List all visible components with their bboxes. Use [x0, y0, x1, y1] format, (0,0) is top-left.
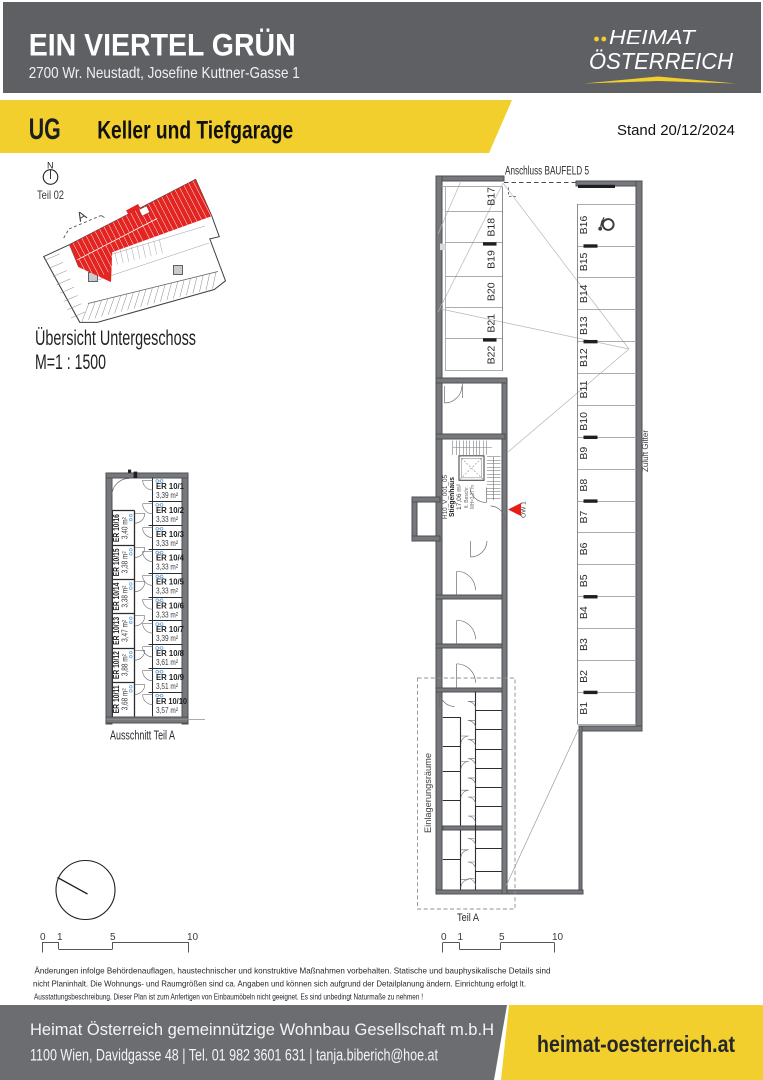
svg-text:ER 10/9: ER 10/9 [156, 672, 184, 682]
svg-text:3,88 m²: 3,88 m² [121, 654, 130, 676]
svg-text:ER 10/13: ER 10/13 [111, 617, 121, 645]
svg-text:B1: B1 [578, 702, 590, 715]
svg-text:B8: B8 [578, 479, 590, 492]
svg-text:ER 10/12: ER 10/12 [111, 651, 121, 679]
svg-text:ER 10/8: ER 10/8 [156, 648, 184, 658]
svg-text:5: 5 [499, 932, 505, 943]
svg-text:Stand 20/12/2024: Stand 20/12/2024 [617, 122, 735, 139]
svg-text:heimat-oesterreich.at: heimat-oesterreich.at [537, 1031, 735, 1057]
svg-text:ER 10/10: ER 10/10 [156, 696, 187, 706]
svg-text:N: N [47, 161, 54, 171]
svg-text:Anschluss BAUFELD 5: Anschluss BAUFELD 5 [505, 166, 589, 178]
svg-text:3,39 m²: 3,39 m² [156, 491, 178, 500]
svg-text:ER 10/11: ER 10/11 [111, 685, 121, 713]
svg-text:3,61 m²: 3,61 m² [156, 658, 178, 667]
svg-text:1: 1 [458, 932, 464, 943]
svg-text:B20: B20 [486, 282, 498, 301]
svg-text:3,33 m²: 3,33 m² [156, 610, 178, 619]
svg-text:3,51 m²: 3,51 m² [156, 682, 178, 691]
svg-text:3,68 m²: 3,68 m² [121, 688, 130, 710]
svg-text:10: 10 [552, 932, 564, 943]
svg-text:Stiegenhaus: Stiegenhaus [449, 477, 456, 517]
svg-text:B19: B19 [486, 250, 498, 269]
svg-text:Änderungen infolge Behördenauf: Änderungen infolge Behördenauflagen, hau… [35, 966, 551, 976]
svg-text:Ausschnitt Teil A: Ausschnitt Teil A [110, 728, 175, 743]
svg-text:5: 5 [110, 932, 116, 943]
svg-text:2700 Wr. Neustadt, Josefine Ku: 2700 Wr. Neustadt, Josefine Kuttner-Gass… [29, 65, 300, 82]
svg-text:3,33 m²: 3,33 m² [156, 587, 178, 596]
svg-text:3,33 m²: 3,33 m² [156, 515, 178, 524]
svg-text:B16: B16 [578, 216, 590, 235]
svg-text:B17: B17 [486, 187, 498, 206]
svg-text:ER 10/4: ER 10/4 [156, 553, 184, 563]
svg-text:B22: B22 [486, 346, 498, 365]
svg-text:3,57 m²: 3,57 m² [156, 706, 178, 715]
svg-text:3,39 m²: 3,39 m² [156, 634, 178, 643]
svg-text:1: 1 [57, 932, 63, 943]
svg-text:UG: UG [29, 113, 61, 146]
svg-text:ER 10/5: ER 10/5 [156, 577, 184, 587]
svg-text:1100 Wien, Davidgasse 48 | Tel: 1100 Wien, Davidgasse 48 | Tel. 01 982 3… [30, 1046, 438, 1065]
svg-text:nicht Planinhalt. Die Wohnungs: nicht Planinhalt. Die Wohnungs- und Raum… [33, 979, 526, 989]
svg-text:OW 1: OW 1 [521, 501, 528, 518]
svg-text:B7: B7 [578, 510, 590, 523]
svg-text:3,33 m²: 3,33 m² [156, 563, 178, 572]
svg-text:ER 10/1: ER 10/1 [156, 481, 184, 491]
svg-text:3,38 m²: 3,38 m² [121, 551, 130, 573]
svg-text:B13: B13 [578, 316, 590, 335]
svg-text:3,40 m²: 3,40 m² [121, 517, 130, 539]
svg-text:B5: B5 [578, 574, 590, 587]
svg-text:0: 0 [40, 932, 46, 943]
svg-text:3,38 m²: 3,38 m² [121, 585, 130, 607]
svg-text:B18: B18 [486, 218, 498, 237]
svg-text:A: A [74, 207, 89, 224]
svg-text:3,33 m²: 3,33 m² [156, 539, 178, 548]
svg-text:ER 10/16: ER 10/16 [111, 514, 121, 542]
svg-text:ER 10/6: ER 10/6 [156, 600, 184, 610]
svg-text:B4: B4 [578, 606, 590, 619]
svg-text:0: 0 [441, 932, 447, 943]
svg-text:M=1 : 1500: M=1 : 1500 [35, 351, 106, 374]
svg-text:B2: B2 [578, 670, 590, 683]
svg-text:ER 10/14: ER 10/14 [111, 582, 121, 610]
svg-text:Teil 02: Teil 02 [37, 188, 64, 202]
svg-text:B21: B21 [486, 314, 498, 333]
svg-text:MH=3,37 m: MH=3,37 m [470, 485, 476, 509]
svg-text:ER 10/7: ER 10/7 [156, 624, 184, 634]
svg-text:17,06 m²: 17,06 m² [457, 484, 463, 510]
svg-text:B3: B3 [578, 638, 590, 651]
svg-text:Heimat Österreich gemeinnützig: Heimat Österreich gemeinnützige Wohnbau … [30, 1020, 494, 1039]
svg-text:Übersicht Untergeschoss: Übersicht Untergeschoss [35, 327, 196, 350]
svg-text:B10: B10 [578, 412, 590, 431]
svg-text:HEIMAT: HEIMAT [609, 26, 697, 49]
svg-text:B14: B14 [578, 284, 590, 303]
svg-text:B15: B15 [578, 252, 590, 271]
svg-text:Teil A: Teil A [457, 912, 480, 924]
svg-text:ER 10/3: ER 10/3 [156, 529, 184, 539]
svg-text:Ausstattungsbeschreibung. Dies: Ausstattungsbeschreibung. Dieser Plan is… [34, 992, 423, 1002]
svg-text:Zuluft Gitter: Zuluft Gitter [641, 430, 650, 472]
svg-text:ER 10/2: ER 10/2 [156, 505, 184, 515]
svg-text:10: 10 [187, 932, 199, 943]
svg-text:Keller und Tiefgarage: Keller und Tiefgarage [97, 117, 293, 145]
svg-text:Einlagerungsräume: Einlagerungsräume [423, 753, 434, 833]
svg-text:ER 10/15: ER 10/15 [111, 548, 121, 576]
svg-text:EIN VIERTEL GRÜN: EIN VIERTEL GRÜN [29, 27, 296, 62]
svg-text:ÖSTERREICH: ÖSTERREICH [589, 48, 733, 74]
svg-text:B6: B6 [578, 542, 590, 555]
svg-text:B9: B9 [578, 447, 590, 460]
svg-text:B11: B11 [578, 380, 590, 398]
svg-text:3,47 m²: 3,47 m² [121, 620, 130, 642]
svg-text:B12: B12 [578, 348, 590, 367]
